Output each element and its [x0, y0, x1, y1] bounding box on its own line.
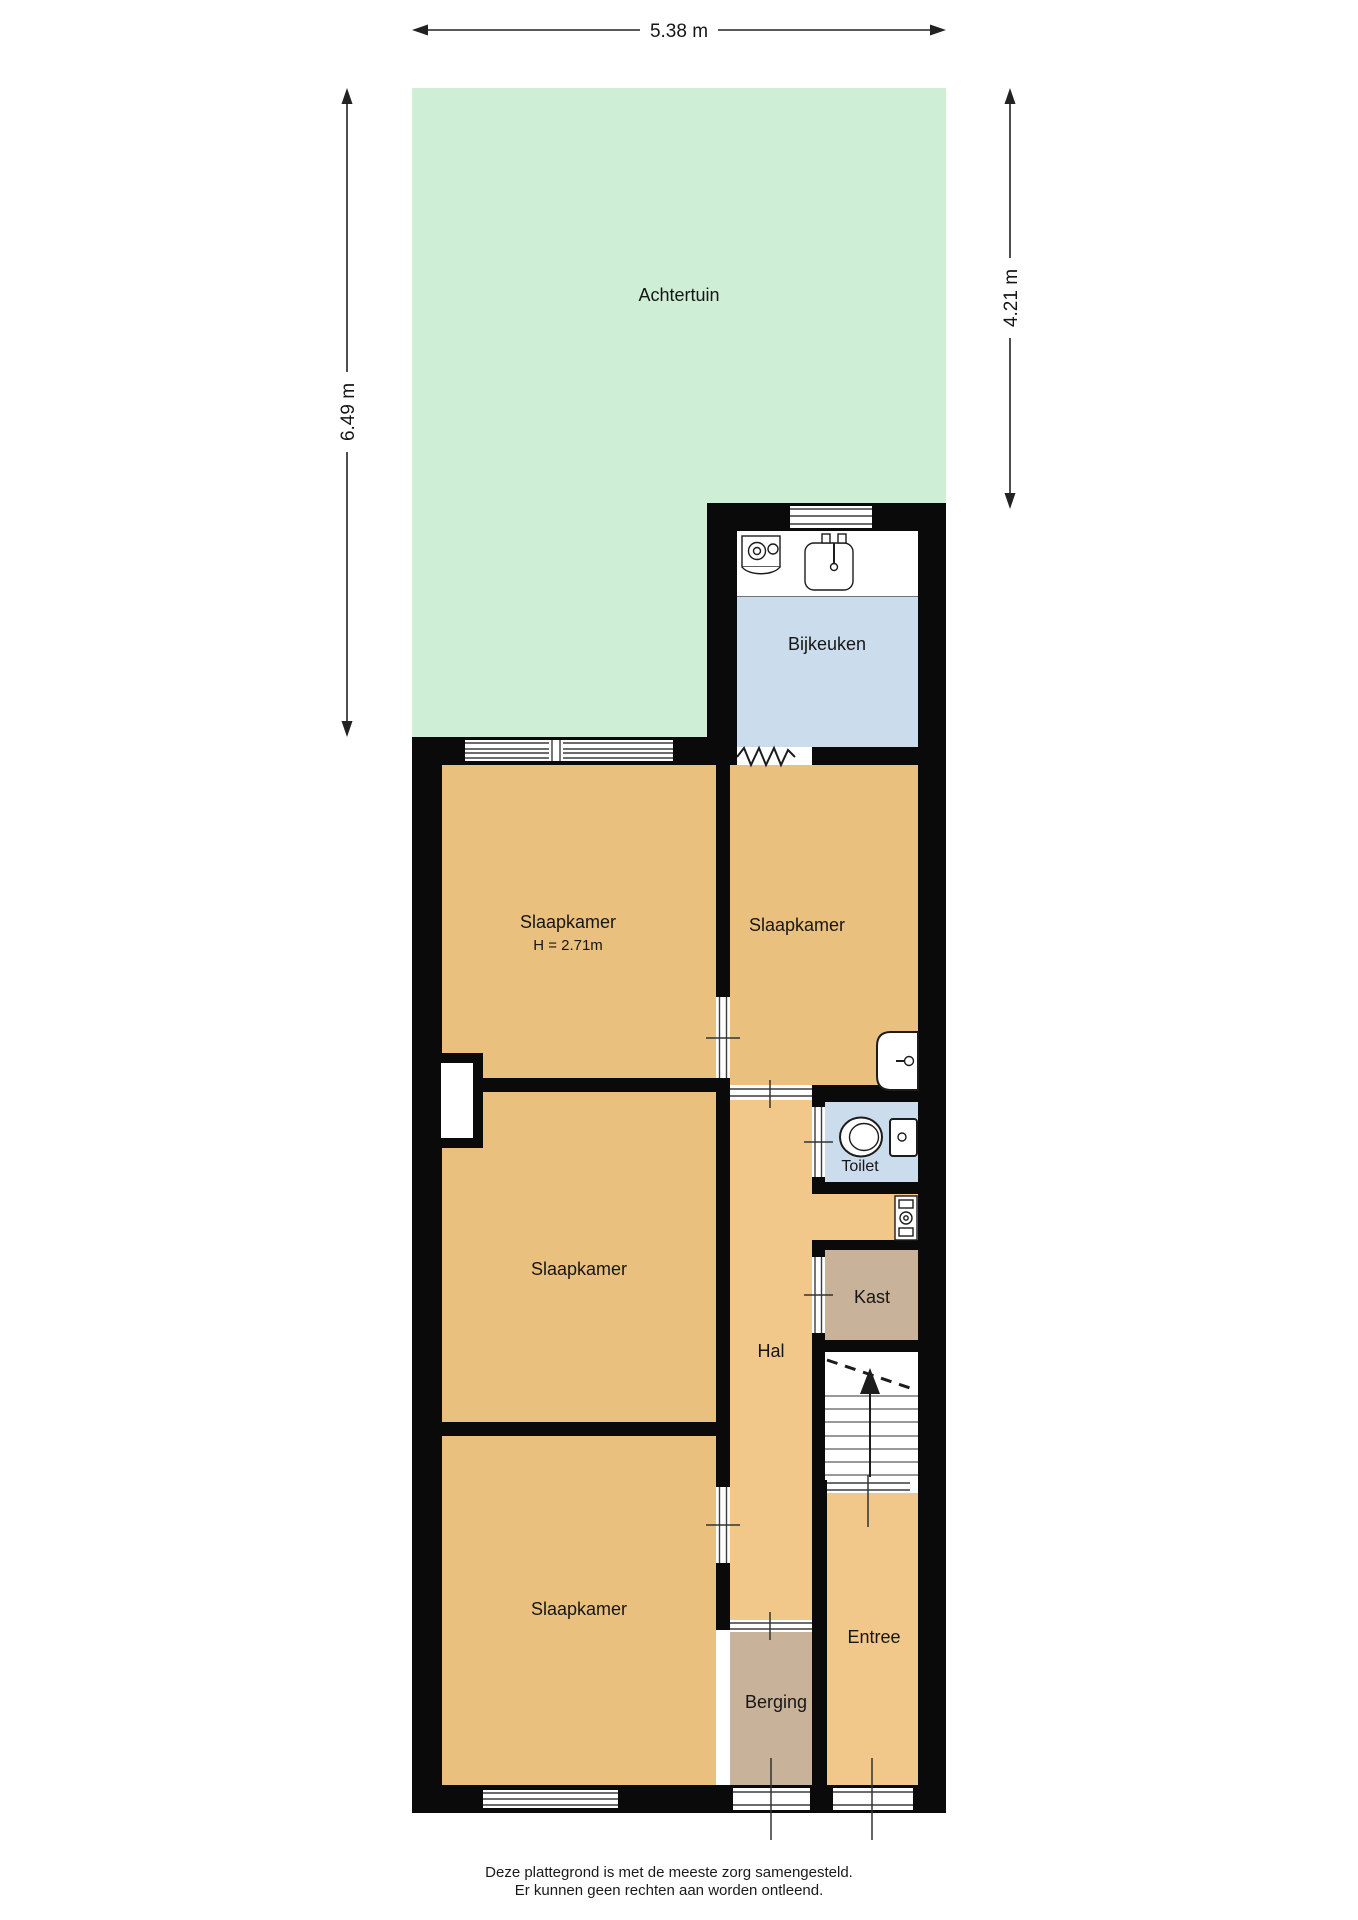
window-front-garden [465, 740, 673, 761]
window-slaapkamer-4 [483, 1790, 618, 1808]
room-label-hal: Hal [757, 1341, 784, 1361]
dimension-right: 4.21 m [1001, 88, 1022, 509]
room-label-achtertuin: Achtertuin [638, 285, 719, 305]
window-bijkeuken [790, 506, 872, 528]
room-label-berging: Berging [745, 1692, 807, 1712]
room-label-slaapkamer-2: Slaapkamer [749, 915, 845, 935]
room-label-slaapkamer-4: Slaapkamer [531, 1599, 627, 1619]
room-label-slaapkamer-3: Slaapkamer [531, 1259, 627, 1279]
room-label-slaapkamer-1-height: H = 2.71m [533, 937, 603, 954]
chimney-recess [441, 1063, 473, 1138]
dimension-left-label: 6.49 m [338, 383, 359, 441]
boiler-icon [895, 1196, 917, 1240]
wash-basin-icon [877, 1032, 918, 1090]
footer-disclaimer: Deze plattegrond is met de meeste zorg s… [485, 1864, 853, 1899]
room-achtertuin-floor-lower [412, 503, 707, 737]
floorplan-drawing: 5.38 m 6.49 m 4.21 m [0, 0, 1358, 1920]
room-label-toilet: Toilet [841, 1158, 879, 1175]
footer-line-2: Er kunnen geen rechten aan worden ontlee… [515, 1882, 824, 1899]
room-label-bijkeuken: Bijkeuken [788, 634, 866, 654]
footer-line-1: Deze plattegrond is met de meeste zorg s… [485, 1864, 853, 1881]
dimension-right-label: 4.21 m [1001, 269, 1022, 327]
room-label-slaapkamer-1: Slaapkamer [520, 912, 616, 932]
room-label-entree: Entree [847, 1627, 900, 1647]
floorplan-page: 5.38 m 6.49 m 4.21 m [0, 0, 1358, 1920]
dimension-top-label: 5.38 m [650, 21, 708, 42]
dimension-left: 6.49 m [338, 88, 359, 737]
dimension-top: 5.38 m [412, 21, 946, 42]
staircase-floor [825, 1352, 918, 1480]
room-bijkeuken-floor [737, 597, 918, 747]
room-label-kast: Kast [854, 1287, 890, 1307]
room-slaapkamer-3-floor [442, 1092, 716, 1422]
washing-machine-icon [742, 536, 780, 574]
